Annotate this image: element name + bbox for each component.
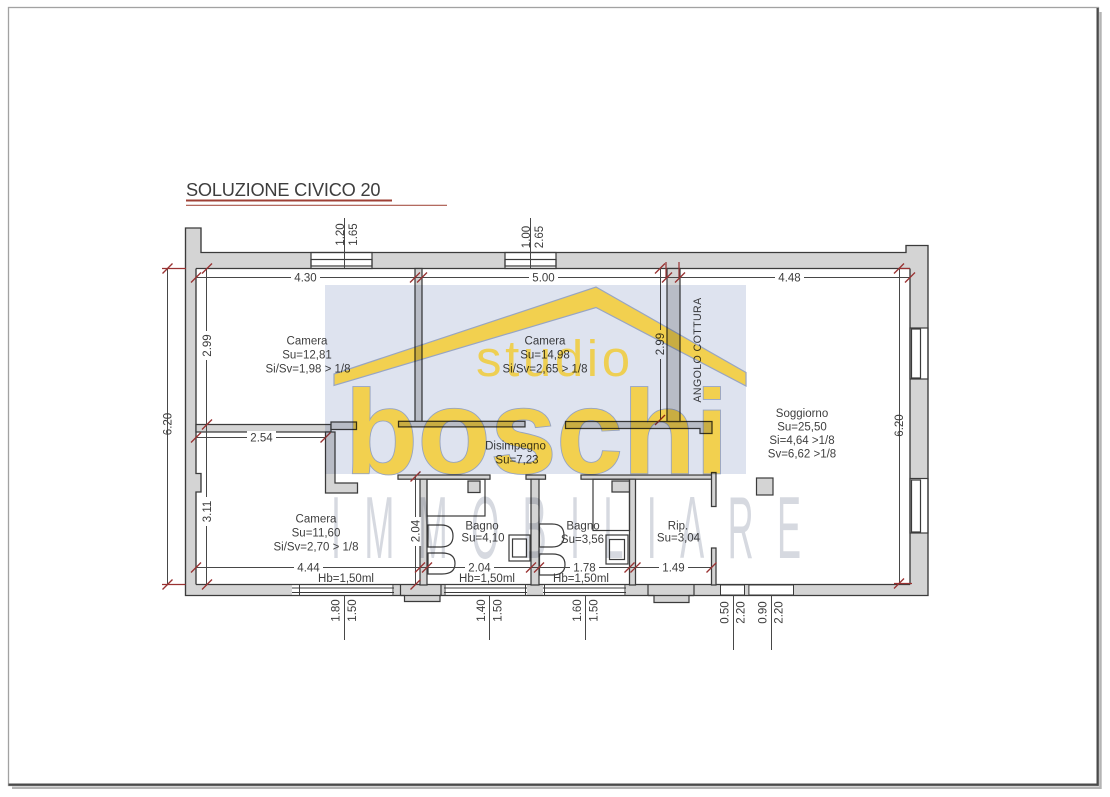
svg-text:Su=3,56: Su=3,56	[561, 534, 604, 546]
svg-text:2.99: 2.99	[202, 334, 214, 356]
svg-text:1.00: 1.00	[521, 226, 533, 248]
svg-text:2.54: 2.54	[250, 433, 273, 445]
svg-text:2.65: 2.65	[534, 226, 546, 248]
svg-text:1.60: 1.60	[572, 599, 584, 621]
svg-text:4.44: 4.44	[297, 563, 320, 575]
svg-text:2.20: 2.20	[774, 601, 786, 623]
svg-text:1.50: 1.50	[493, 599, 505, 621]
svg-text:3.11: 3.11	[202, 501, 214, 523]
svg-text:Su=12,81: Su=12,81	[282, 350, 332, 362]
svg-text:1.80: 1.80	[331, 599, 343, 621]
svg-text:Soggiorno: Soggiorno	[776, 408, 828, 420]
svg-text:Camera: Camera	[287, 336, 329, 348]
svg-text:Sv=6,62 >1/8: Sv=6,62 >1/8	[768, 449, 836, 461]
svg-text:Su=25,50: Su=25,50	[777, 422, 827, 434]
svg-text:4.48: 4.48	[778, 273, 800, 285]
svg-text:5.00: 5.00	[532, 273, 554, 285]
svg-text:Hb=1,50ml: Hb=1,50ml	[553, 573, 609, 585]
svg-text:1.65: 1.65	[348, 223, 360, 245]
svg-text:1.50: 1.50	[347, 599, 359, 621]
svg-text:2.20: 2.20	[736, 601, 748, 623]
svg-text:4.30: 4.30	[294, 273, 316, 285]
svg-text:1.40: 1.40	[476, 599, 488, 621]
svg-text:0.90: 0.90	[758, 601, 770, 623]
svg-text:Si/Sv=2,70 > 1/8: Si/Sv=2,70 > 1/8	[273, 542, 358, 554]
svg-text:1.20: 1.20	[335, 223, 347, 245]
svg-text:6.20: 6.20	[163, 413, 175, 435]
svg-text:0.50: 0.50	[720, 601, 732, 623]
svg-text:SOLUZIONE CIVICO 20: SOLUZIONE CIVICO 20	[186, 180, 380, 200]
svg-text:1.50: 1.50	[589, 599, 601, 621]
svg-text:6.20: 6.20	[894, 414, 906, 436]
svg-text:Si=4,64 >1/8: Si=4,64 >1/8	[769, 435, 834, 447]
